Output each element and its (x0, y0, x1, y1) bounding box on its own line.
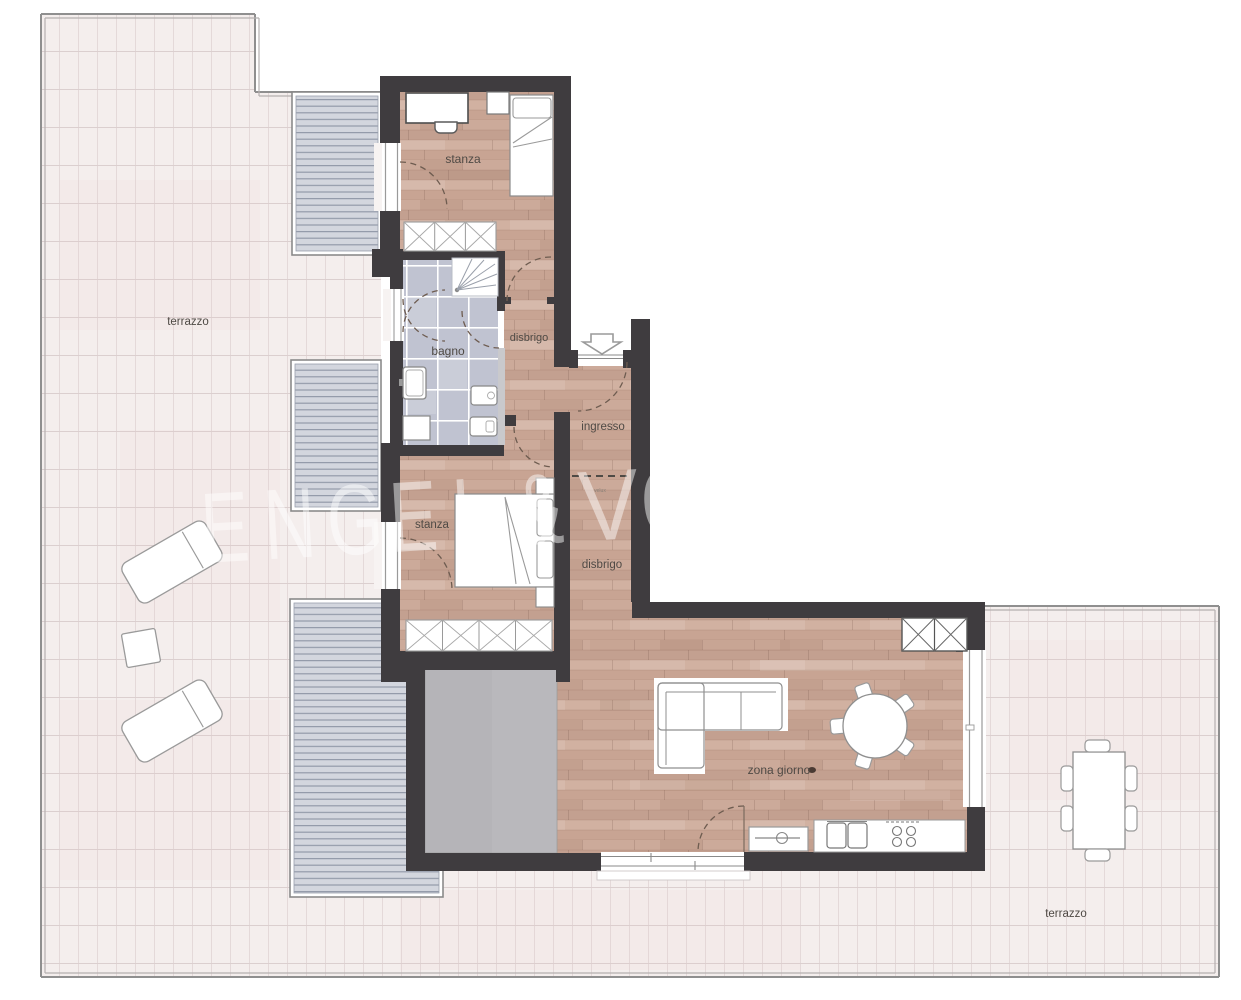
svg-text:E: E (386, 460, 440, 574)
svg-text:zona giorno: zona giorno (748, 763, 811, 777)
svg-text:E: E (198, 471, 252, 585)
svg-text:terrazzo: terrazzo (167, 316, 209, 328)
svg-text:stanza: stanza (445, 152, 481, 166)
svg-text:N: N (260, 467, 318, 581)
svg-text:ingresso: ingresso (581, 421, 624, 433)
svg-text:bagno: bagno (431, 344, 465, 358)
svg-text:V: V (576, 449, 643, 564)
svg-text:L: L (449, 457, 495, 570)
svg-text:&: & (512, 453, 566, 567)
svg-text:stanza: stanza (415, 519, 449, 531)
svg-text:disbrigo: disbrigo (582, 559, 622, 571)
svg-text:disbrigo: disbrigo (510, 332, 549, 344)
svg-text:Ö: Ö (638, 445, 700, 559)
svg-text:terrazzo: terrazzo (1045, 908, 1087, 920)
svg-text:G: G (324, 463, 386, 577)
